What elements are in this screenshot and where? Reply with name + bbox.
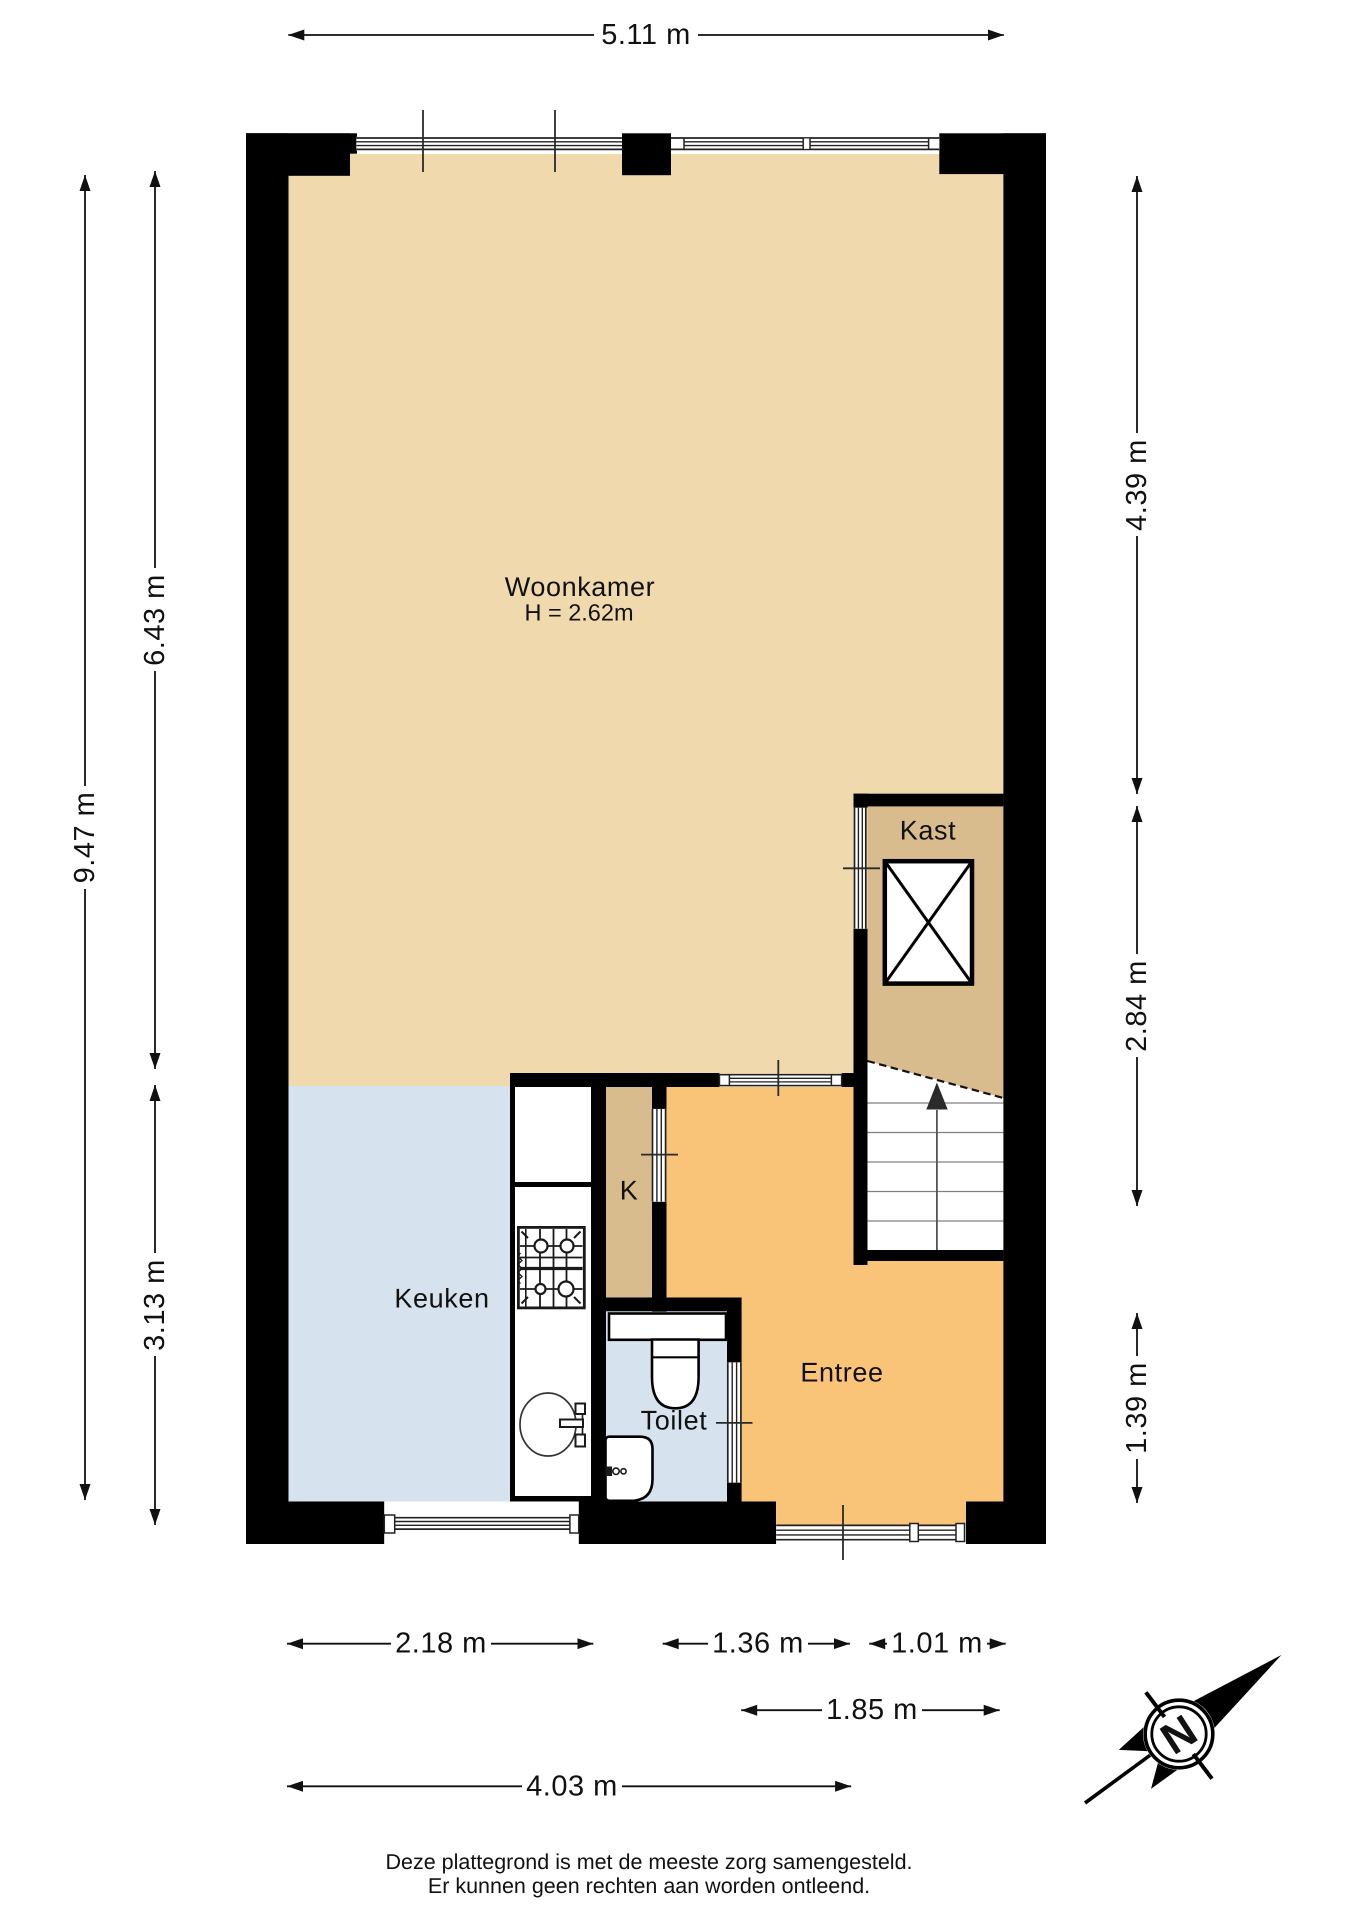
svg-text:2.84 m: 2.84 m [1121,960,1153,1052]
svg-text:1.85 m: 1.85 m [826,1694,918,1726]
svg-text:Er kunnen geen rechten aan wor: Er kunnen geen rechten aan worden ontlee… [428,1874,870,1898]
svg-text:4.39 m: 4.39 m [1121,439,1153,531]
svg-text:Keuken: Keuken [394,1284,489,1314]
svg-text:Deze plattegrond is met de mee: Deze plattegrond is met de meeste zorg s… [385,1850,912,1874]
svg-text:1.36 m: 1.36 m [712,1628,804,1660]
svg-text:9.47 m: 9.47 m [69,792,101,884]
svg-text:Woonkamer: Woonkamer [505,572,655,602]
svg-text:Kast: Kast [900,816,956,846]
svg-text:4.03 m: 4.03 m [526,1770,618,1802]
svg-text:3.13 m: 3.13 m [139,1259,171,1351]
svg-text:H = 2.62m: H = 2.62m [524,600,633,626]
svg-text:1.39 m: 1.39 m [1121,1362,1153,1454]
svg-text:1.01 m: 1.01 m [891,1628,983,1660]
svg-text:K: K [620,1176,639,1206]
svg-text:6.43 m: 6.43 m [139,574,171,666]
svg-text:Entree: Entree [800,1358,883,1388]
svg-text:5.11 m: 5.11 m [601,19,691,51]
svg-text:Toilet: Toilet [641,1406,708,1436]
svg-text:2.18 m: 2.18 m [395,1628,487,1660]
